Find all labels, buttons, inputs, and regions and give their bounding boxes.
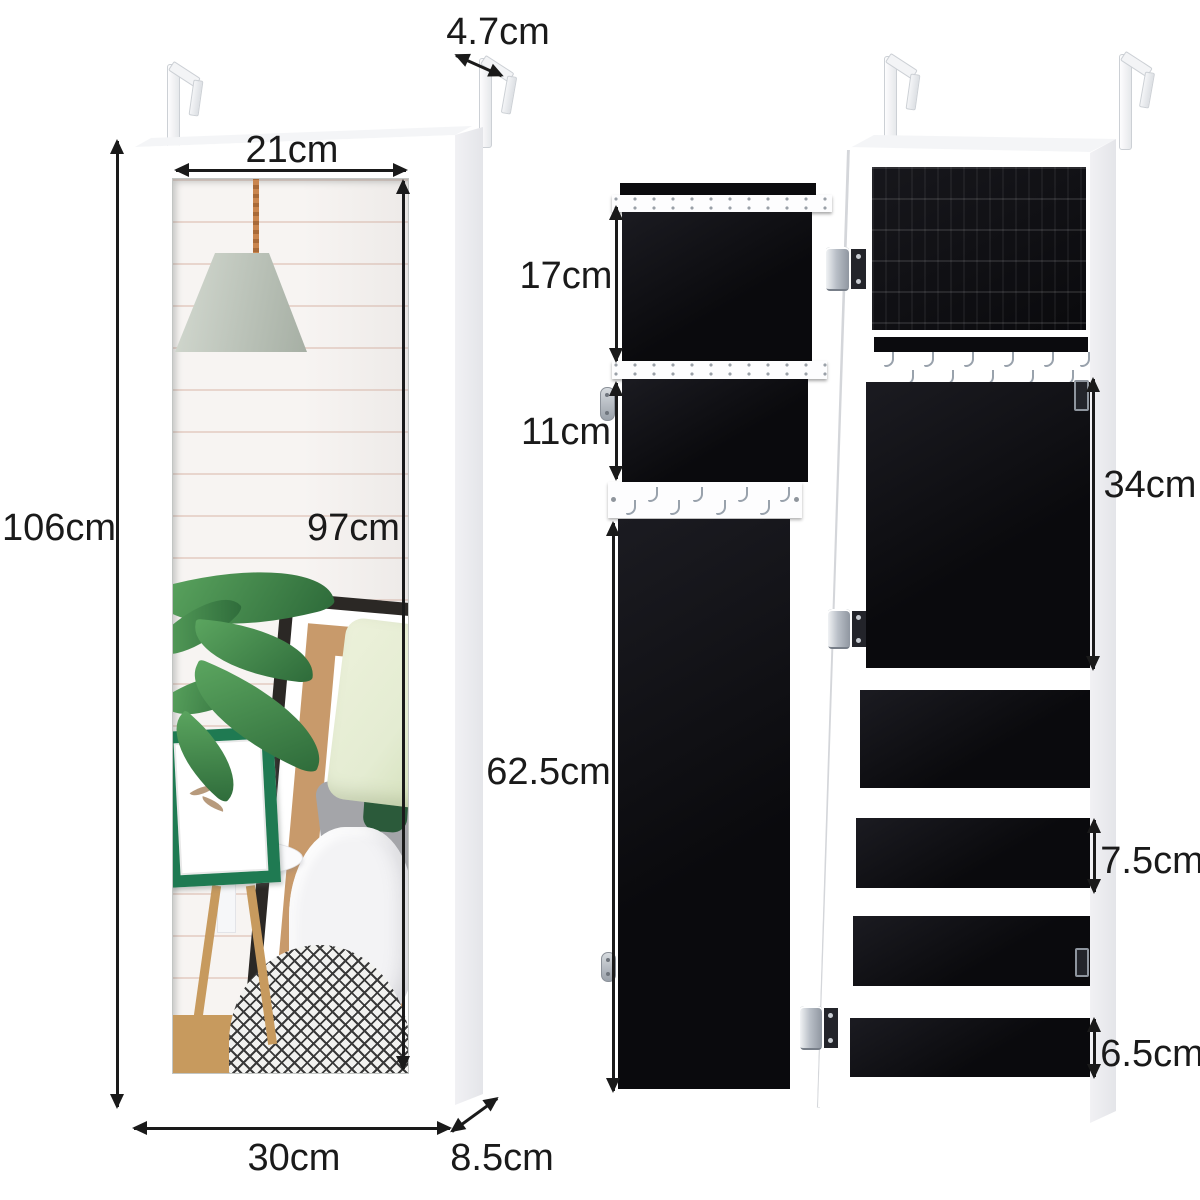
dim-label-bottom-shelf-spacing: 6.5cm [1100, 1035, 1200, 1075]
screw-icon [611, 497, 616, 502]
j-hook-icon [670, 500, 680, 515]
dim-arrow-mirror-height [402, 181, 405, 1069]
j-hook-icon [780, 487, 790, 502]
shelf-slot [874, 337, 1088, 352]
dim-label-necklace-panel: 34cm [1100, 466, 1200, 506]
hinge-plate [852, 611, 866, 648]
hinge-plate [824, 1008, 838, 1048]
dim-arrow-shelf-spacing [1093, 820, 1096, 892]
dim-label-mirror-height: 97cm [306, 509, 401, 549]
storage-compartment [853, 916, 1090, 986]
j-hook-icon [738, 487, 748, 502]
over-door-hanger-bar-icon [1119, 54, 1132, 150]
product-dimension-diagram: k t 106cm [0, 0, 1200, 1200]
necklace-hook-strip [608, 482, 802, 518]
j-hook-icon [648, 487, 658, 502]
j-hook-icon [1004, 352, 1014, 367]
hinge-icon [800, 1006, 838, 1050]
dim-label-hook-depth: 4.7cm [446, 13, 550, 53]
dim-arrow-cabinet-height [116, 141, 119, 1107]
dim-label-cabinet-depth: 8.5cm [450, 1139, 554, 1179]
j-hook-icon [884, 352, 894, 367]
j-hook-icon [1044, 352, 1054, 367]
over-door-hanger-tab-icon [1139, 71, 1155, 108]
dim-label-cabinet-width: 30cm [238, 1139, 350, 1179]
over-door-hanger-tab-icon [501, 75, 517, 114]
screw-icon [794, 497, 799, 502]
j-hook-icon [760, 500, 770, 515]
hinge-icon [826, 247, 866, 291]
necklace-hook-strip [872, 352, 1090, 386]
dim-arrow-bottom-shelf-spacing [1093, 1019, 1096, 1077]
velvet-panel-62cm [618, 519, 790, 1089]
lamp-cord [253, 179, 259, 257]
dim-label-upper-compartment: 11cm [517, 413, 615, 453]
earring-strip [612, 361, 827, 379]
hinge-icon [828, 609, 866, 649]
hinge-knuckle [800, 1006, 822, 1050]
hinge-knuckle [828, 609, 850, 649]
dim-label-earring-panel: 17cm [517, 257, 615, 297]
storage-compartment [850, 1018, 1090, 1077]
mirror-panel: k t [172, 178, 409, 1074]
dim-label-mirror-width: 21cm [238, 131, 346, 171]
j-hook-icon [924, 352, 934, 367]
ring-storage-panel [872, 167, 1086, 330]
over-door-hanger-tab-icon [906, 73, 921, 110]
velvet-panel-17cm [622, 212, 812, 362]
j-hook-icon [1080, 352, 1090, 367]
door-panel-interior [600, 128, 848, 1116]
dim-arrow-door-panel [612, 523, 615, 1091]
velvet-panel-11cm [622, 379, 808, 482]
lamp-shade [175, 253, 307, 352]
magnet-strike-plate [1075, 948, 1089, 977]
j-hook-icon [716, 500, 726, 515]
cabinet-side-face [455, 127, 483, 1105]
j-hook-icon [964, 352, 974, 367]
dim-arrow-upper-compartment [615, 383, 618, 479]
j-hook-icon [693, 487, 703, 502]
dim-label-door-panel: 62.5cm [486, 753, 611, 793]
dim-arrow-necklace-panel [1092, 379, 1095, 669]
hinge-knuckle [826, 247, 849, 291]
hinge-plate [851, 249, 866, 289]
dim-arrow-earring-panel [615, 207, 618, 361]
earring-strip [612, 195, 832, 212]
dim-label-cabinet-height: 106cm [2, 509, 114, 549]
dim-arrow-cabinet-width [134, 1127, 450, 1130]
velvet-panel-34cm [866, 382, 1090, 668]
dim-label-shelf-spacing: 7.5cm [1100, 842, 1200, 882]
j-hook-icon [626, 500, 636, 515]
storage-compartment [860, 690, 1090, 788]
storage-compartment [856, 818, 1090, 888]
